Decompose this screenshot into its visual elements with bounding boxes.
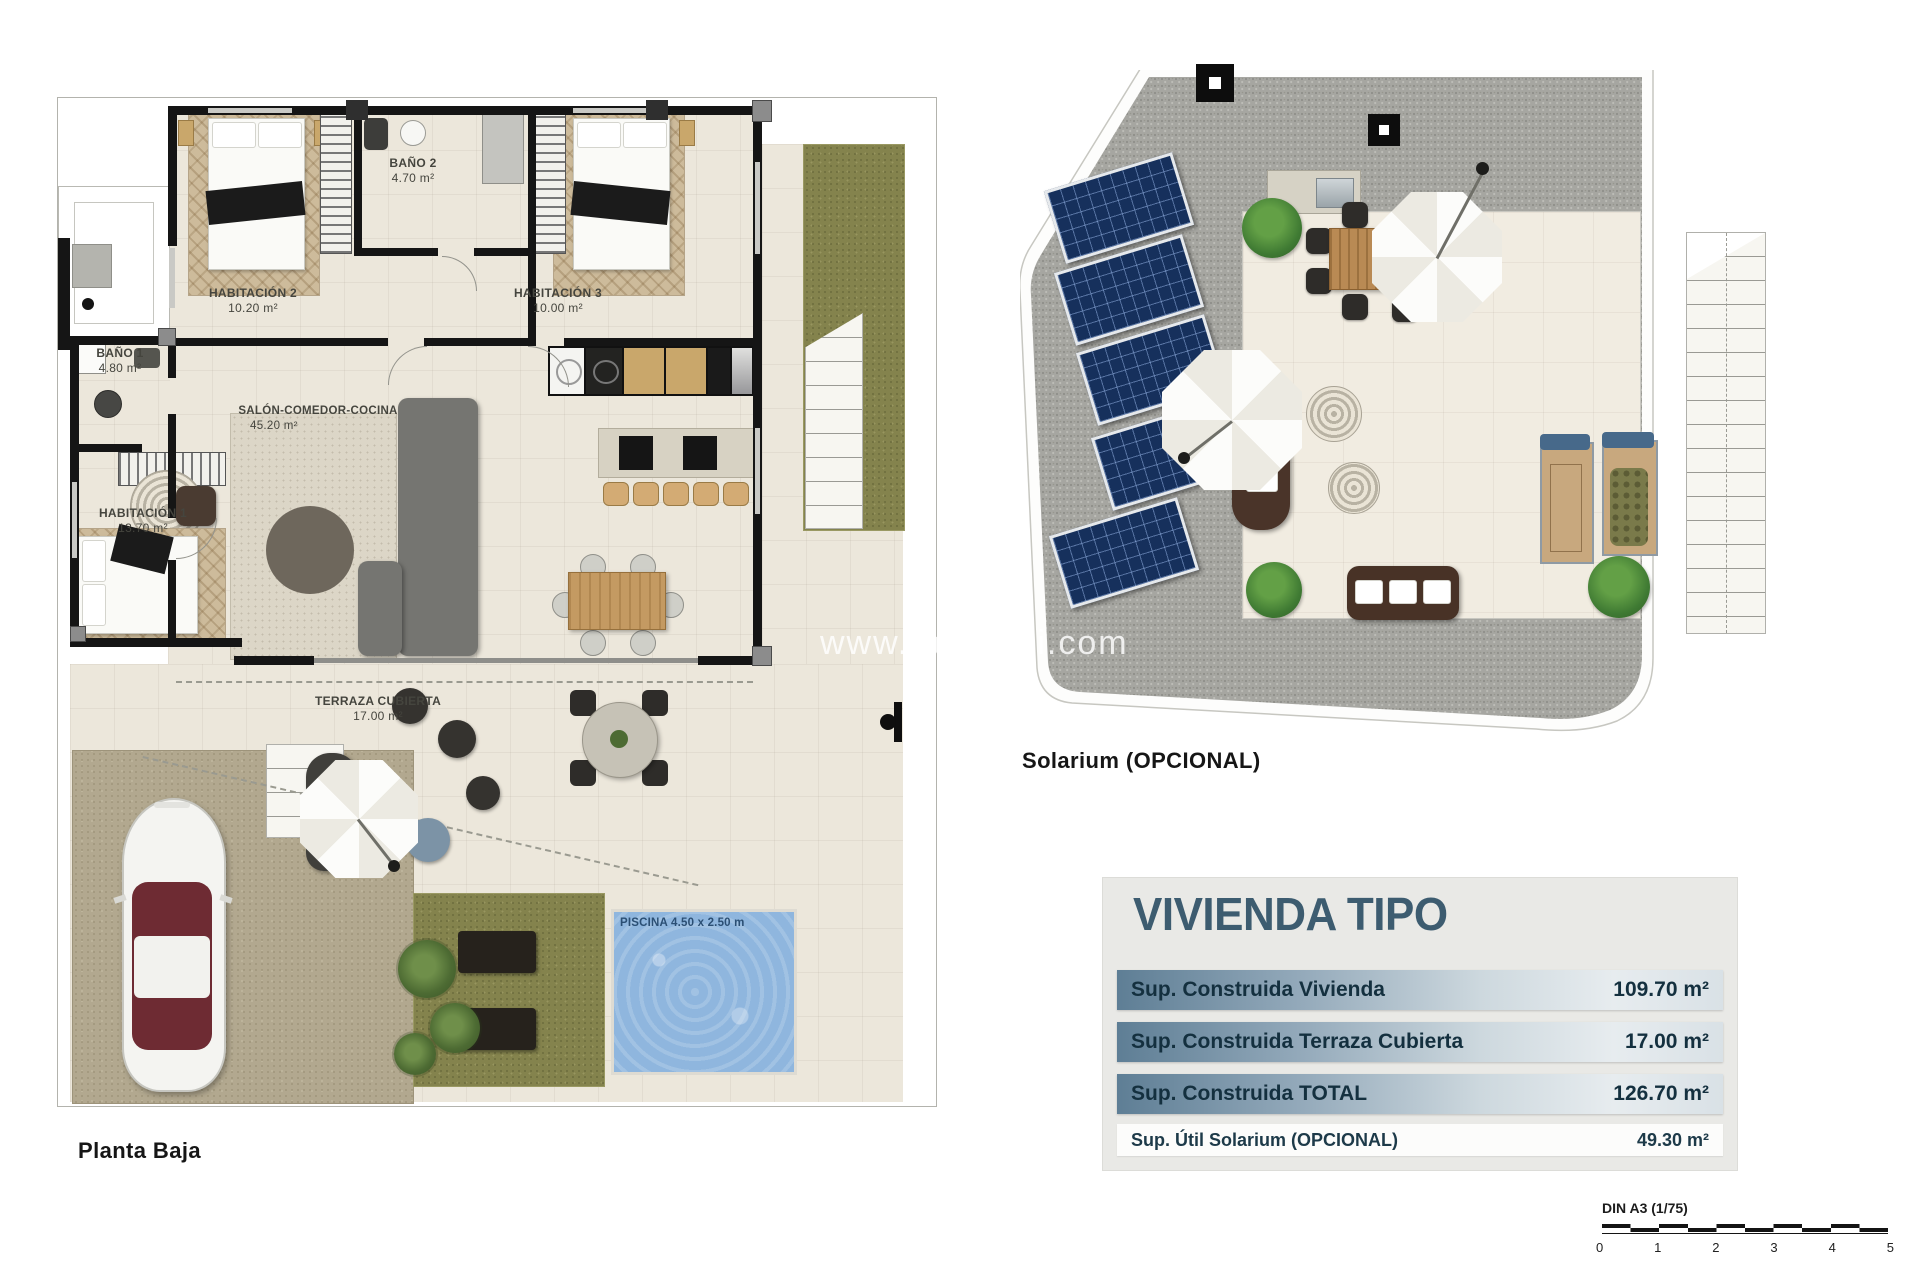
wall-pier: [752, 100, 772, 122]
solarium-chair: [1342, 202, 1368, 228]
toilet-bano2: [364, 118, 388, 150]
room-name: TERRAZA CUBIERTA: [288, 694, 468, 709]
wall-pier: [158, 328, 176, 346]
parasol-base: [388, 860, 400, 872]
shower-bano2: [482, 112, 524, 184]
palm-tree-3: [394, 1033, 436, 1075]
umbrella-base: [1178, 452, 1190, 464]
sink-bano2: [400, 120, 426, 146]
wall-pier: [346, 100, 368, 120]
palm-tree-1: [398, 940, 456, 998]
roof-vent-core: [1379, 125, 1389, 135]
kitchen-counter: [548, 346, 754, 396]
wall: [70, 638, 242, 647]
summary-row-solarium: Sup. Útil Solarium (OPCIONAL) 49.30 m²: [1117, 1124, 1723, 1156]
wall: [168, 414, 176, 518]
pouf: [438, 720, 476, 758]
wall: [70, 444, 142, 452]
scale-tick: 5: [1887, 1240, 1894, 1255]
scale-bar-segments-bottom: [1602, 1228, 1888, 1232]
pool-label: PISCINA 4.50 x 2.50 m: [620, 917, 745, 929]
room-area: 45.20 m²: [208, 419, 428, 434]
sliding-glass-wall: [314, 658, 698, 663]
wall: [564, 338, 762, 346]
room-area: 10.20 m²: [173, 301, 333, 316]
room-area: 10.00 m²: [478, 301, 638, 316]
row-value: 126.70 m²: [1613, 1082, 1709, 1106]
room-area: 4.80 m²: [72, 361, 168, 376]
car-roof: [134, 936, 210, 998]
row-value: 17.00 m²: [1625, 1030, 1709, 1054]
wardrobe-hab2: [320, 112, 352, 254]
wall: [354, 248, 438, 256]
wardrobe-hab3: [534, 112, 566, 254]
roof-vent-core: [1209, 77, 1221, 89]
room-area: 13.70 m²: [78, 521, 208, 536]
kitchen-island: [598, 428, 756, 478]
planta-baja-caption: Planta Baja: [78, 1138, 201, 1164]
solarium-sofa: [1347, 566, 1459, 620]
scale-tick: 1: [1654, 1240, 1661, 1255]
summary-row-total: Sup. Construida TOTAL 126.70 m²: [1117, 1074, 1723, 1114]
scale-tick: 3: [1770, 1240, 1777, 1255]
scale-tick: 0: [1596, 1240, 1603, 1255]
room-area: 17.00 m²: [288, 709, 468, 724]
roof-vent: [1368, 114, 1400, 146]
row-label: Sup. Construida Terraza Cubierta: [1131, 1030, 1463, 1054]
room-label-bano2: BAÑO 2 4.70 m²: [358, 156, 468, 186]
room-label-habitacion1: HABITACIÓN 1 13.70 m²: [78, 506, 208, 536]
entry-lamp-icon: [82, 298, 94, 310]
wall: [168, 560, 176, 638]
porch-wall: [58, 238, 70, 350]
lounger-frame: [1550, 464, 1582, 552]
wall-pier: [70, 626, 86, 642]
room-label-bano1: BAÑO 1 4.80 m²: [72, 346, 168, 376]
wall-pier: [646, 100, 668, 120]
wall: [474, 248, 536, 256]
oven: [586, 348, 622, 394]
lounger-towel: [1610, 468, 1648, 546]
solarium-caption: Solarium (OPCIONAL): [1022, 748, 1261, 774]
parasol-base: [1476, 162, 1489, 175]
stair-centerline: [1726, 233, 1727, 633]
room-name: HABITACIÓN 1: [78, 506, 208, 521]
watermark: www.ray bi.com: [820, 624, 1129, 663]
lounge-umbrella: [1162, 350, 1302, 490]
roof-vent: [1196, 64, 1234, 102]
sink-bano1: [94, 390, 122, 418]
round-rug: [1306, 386, 1362, 442]
room-name: SALÓN-COMEDOR-COCINA: [208, 404, 428, 419]
round-rug: [1328, 462, 1380, 514]
stool: [663, 482, 689, 506]
wall: [424, 338, 528, 346]
stool: [603, 482, 629, 506]
sun-lounger: [1540, 442, 1594, 564]
sofa: [398, 398, 478, 656]
wall: [168, 106, 177, 246]
row-value: 49.30 m²: [1637, 1130, 1709, 1151]
room-area: 4.70 m²: [358, 171, 468, 186]
planta-baja-plan: PISCINA 4.50 x 2.50 m: [57, 97, 937, 1107]
window: [755, 428, 760, 514]
wall-pier: [752, 646, 772, 666]
lounger-headrest: [1602, 432, 1654, 448]
dining-table: [568, 572, 666, 630]
summary-row-terraza: Sup. Construida Terraza Cubierta 17.00 m…: [1117, 1022, 1723, 1062]
pillow: [258, 122, 302, 148]
cooktop: [619, 436, 653, 470]
stool: [693, 482, 719, 506]
solarium-chair: [1342, 294, 1368, 320]
pillow: [623, 122, 667, 148]
pool: PISCINA 4.50 x 2.50 m: [611, 909, 797, 1075]
room-label-habitacion3: HABITACIÓN 3 10.00 m²: [478, 286, 638, 316]
car-hood-line: [154, 802, 190, 808]
summary-row-vivienda: Sup. Construida Vivienda 109.70 m²: [1117, 970, 1723, 1010]
watermark-right: bi.com: [1016, 624, 1128, 663]
dining-chair: [630, 630, 656, 656]
room-name: HABITACIÓN 2: [173, 286, 333, 301]
row-label: Sup. Útil Solarium (OPCIONAL): [1131, 1130, 1398, 1151]
window: [208, 108, 292, 113]
scale-tick: 4: [1829, 1240, 1836, 1255]
exterior-staircase: [805, 313, 863, 529]
row-label: Sup. Construida TOTAL: [1131, 1082, 1367, 1106]
window: [755, 162, 760, 254]
solarium-plan: SOLARIUM 49.30 m²: [1020, 70, 1840, 770]
pillow: [82, 540, 106, 582]
room-name: BAÑO 2: [358, 156, 468, 171]
room-label-terraza: TERRAZA CUBIERTA 17.00 m²: [288, 694, 468, 724]
nightstand: [178, 120, 194, 146]
watermark-left: www.ray: [820, 624, 962, 663]
room-name: HABITACIÓN 3: [478, 286, 638, 301]
room-name: BAÑO 1: [72, 346, 168, 361]
floorplan-sheet: PISCINA 4.50 x 2.50 m: [0, 0, 1920, 1280]
dining-chair: [580, 630, 606, 656]
sofa-chaise: [358, 561, 402, 656]
bush: [1588, 556, 1650, 618]
pillow: [212, 122, 256, 148]
cabinet: [666, 348, 706, 394]
scale-bar: [1602, 1224, 1888, 1234]
bush: [1246, 562, 1302, 618]
palm-tree-2: [430, 1003, 480, 1053]
solarium-staircase: [1686, 232, 1766, 634]
tall-unit: [708, 348, 730, 394]
row-label: Sup. Construida Vivienda: [1131, 978, 1385, 1002]
pillow: [577, 122, 621, 148]
window: [573, 108, 657, 113]
window: [72, 482, 77, 558]
summary-title: VIVIENDA TIPO: [1133, 889, 1448, 942]
wall: [234, 656, 314, 665]
table-plant: [610, 730, 628, 748]
entry-mat: [72, 244, 112, 288]
wall: [168, 338, 388, 346]
lounger-headrest: [1540, 434, 1590, 450]
row-value: 109.70 m²: [1613, 978, 1709, 1002]
car: [122, 798, 226, 1092]
bush: [1242, 198, 1302, 258]
salon-round-rug: [266, 506, 354, 594]
stool: [633, 482, 659, 506]
summary-panel: VIVIENDA TIPO Sup. Construida Vivienda 1…: [1103, 878, 1737, 1170]
outdoor-shower-head: [880, 714, 896, 730]
room-label-salon: SALÓN-COMEDOR-COCINA 45.20 m²: [208, 404, 428, 434]
garden-lounger-1: [458, 931, 536, 973]
scale-ticks: 0 1 2 3 4 5: [1596, 1240, 1894, 1255]
pouf: [466, 776, 500, 810]
sun-lounger: [1602, 440, 1658, 556]
room-label-habitacion2: HABITACIÓN 2 10.20 m²: [173, 286, 333, 316]
stool: [723, 482, 749, 506]
scale-tick: 2: [1712, 1240, 1719, 1255]
nightstand: [679, 120, 695, 146]
cooktop: [683, 436, 717, 470]
cushion: [1355, 580, 1383, 604]
fridge: [732, 348, 752, 394]
cabinet: [624, 348, 664, 394]
outdoor-chair: [570, 690, 596, 716]
cushion: [1423, 580, 1451, 604]
pillow: [82, 584, 106, 626]
roof-overhang-dashed-line: [176, 681, 753, 683]
cushion: [1389, 580, 1417, 604]
scale-label: DIN A3 (1/75): [1602, 1200, 1688, 1216]
